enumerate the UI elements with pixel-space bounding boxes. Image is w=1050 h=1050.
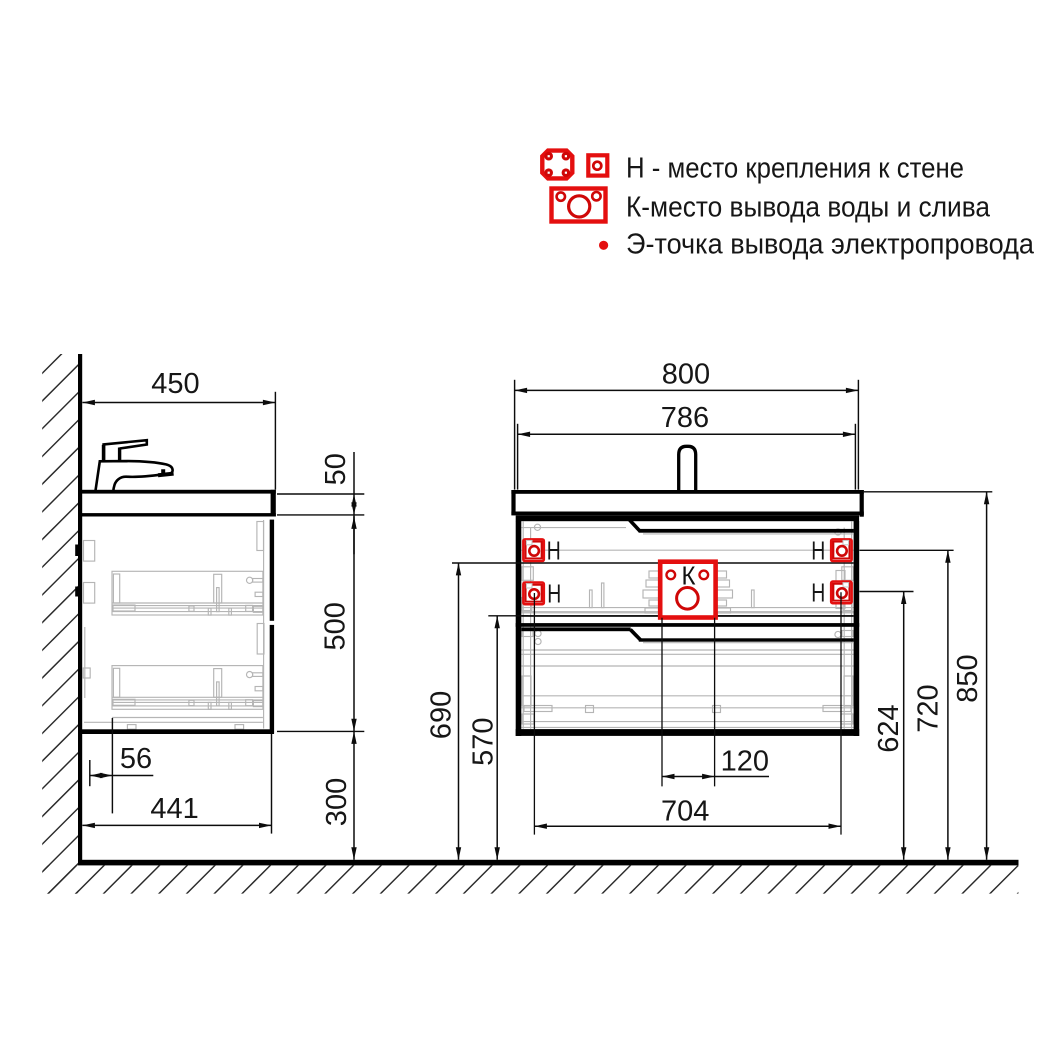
svg-text:К-место вывода воды и слива: К-место вывода воды и слива (626, 192, 990, 224)
svg-text:56: 56 (120, 743, 152, 775)
svg-text:720: 720 (913, 684, 945, 732)
svg-text:441: 441 (150, 793, 198, 825)
svg-text:786: 786 (661, 402, 709, 434)
svg-text:450: 450 (151, 368, 199, 400)
svg-text:300: 300 (321, 778, 353, 826)
svg-text:Н: Н (811, 535, 825, 565)
svg-text:690: 690 (426, 691, 458, 739)
svg-text:Н: Н (547, 535, 561, 565)
svg-text:Н - место крепления к стене: Н - место крепления к стене (626, 153, 964, 185)
svg-text:120: 120 (721, 745, 769, 777)
svg-text:850: 850 (952, 654, 984, 702)
svg-text:Э-точка вывода электропровода: Э-точка вывода электропровода (626, 229, 1034, 261)
svg-text:624: 624 (873, 704, 905, 752)
svg-text:704: 704 (661, 795, 709, 827)
svg-text:500: 500 (320, 602, 352, 650)
svg-text:К: К (682, 561, 696, 591)
svg-text:800: 800 (662, 358, 710, 390)
svg-text:50: 50 (320, 453, 352, 485)
svg-text:570: 570 (467, 718, 499, 766)
svg-text:Н: Н (811, 578, 825, 608)
svg-text:Н: Н (547, 579, 561, 609)
